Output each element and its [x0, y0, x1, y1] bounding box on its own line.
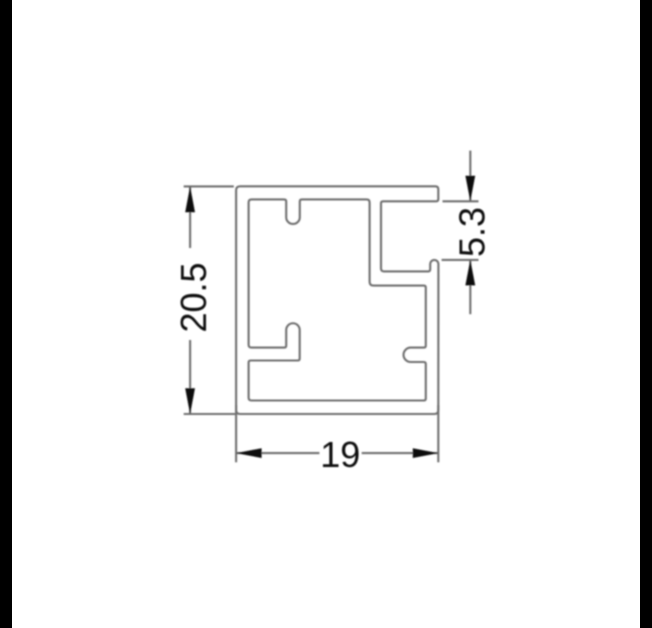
- svg-text:20.5: 20.5: [173, 262, 214, 332]
- svg-text:5.3: 5.3: [451, 207, 492, 257]
- svg-text:19: 19: [320, 434, 360, 475]
